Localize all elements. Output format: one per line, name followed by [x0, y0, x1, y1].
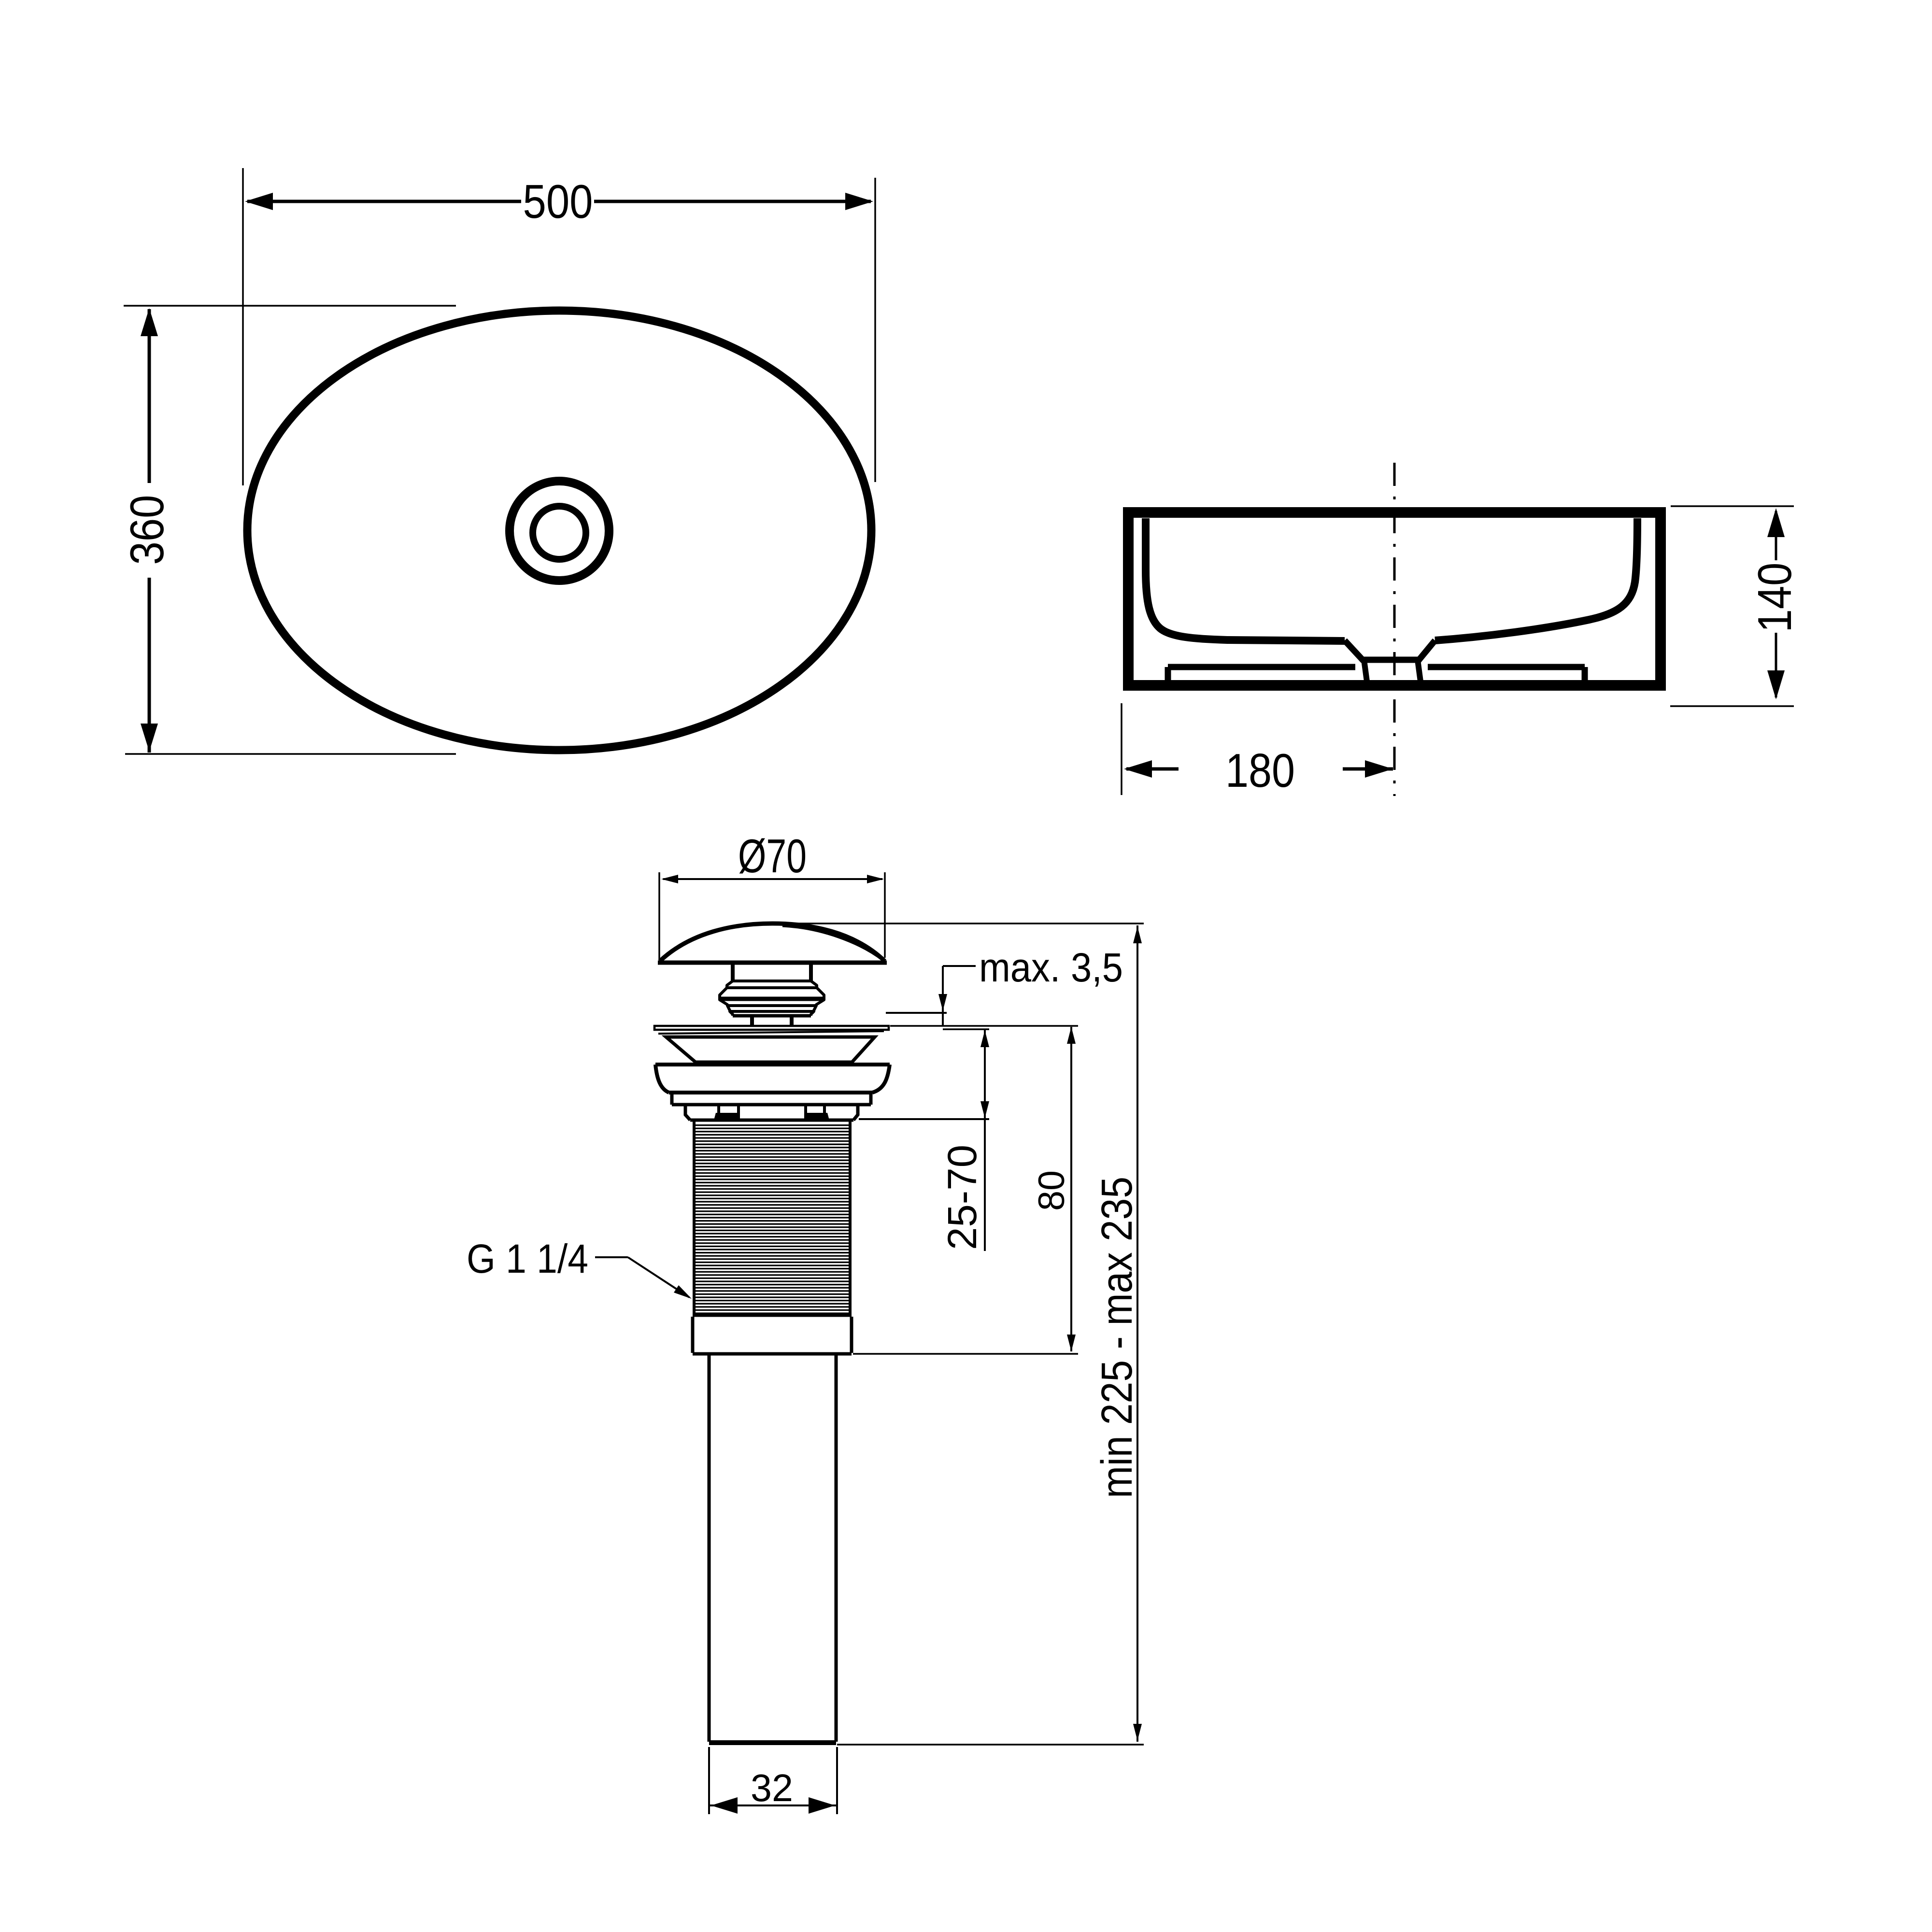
- svg-text:80: 80: [1031, 1170, 1072, 1211]
- svg-text:360: 360: [120, 495, 173, 565]
- svg-text:G 1 1/4: G 1 1/4: [467, 1236, 588, 1281]
- svg-text:max. 3,5: max. 3,5: [979, 945, 1123, 990]
- svg-text:32: 32: [751, 1766, 793, 1809]
- svg-text:25-70: 25-70: [939, 1145, 985, 1250]
- svg-text:180: 180: [1225, 744, 1295, 797]
- svg-text:Ø70: Ø70: [738, 829, 807, 882]
- svg-text:min 225 - max 235: min 225 - max 235: [1093, 1177, 1141, 1498]
- svg-text:140: 140: [1748, 563, 1801, 633]
- svg-text:500: 500: [523, 175, 593, 228]
